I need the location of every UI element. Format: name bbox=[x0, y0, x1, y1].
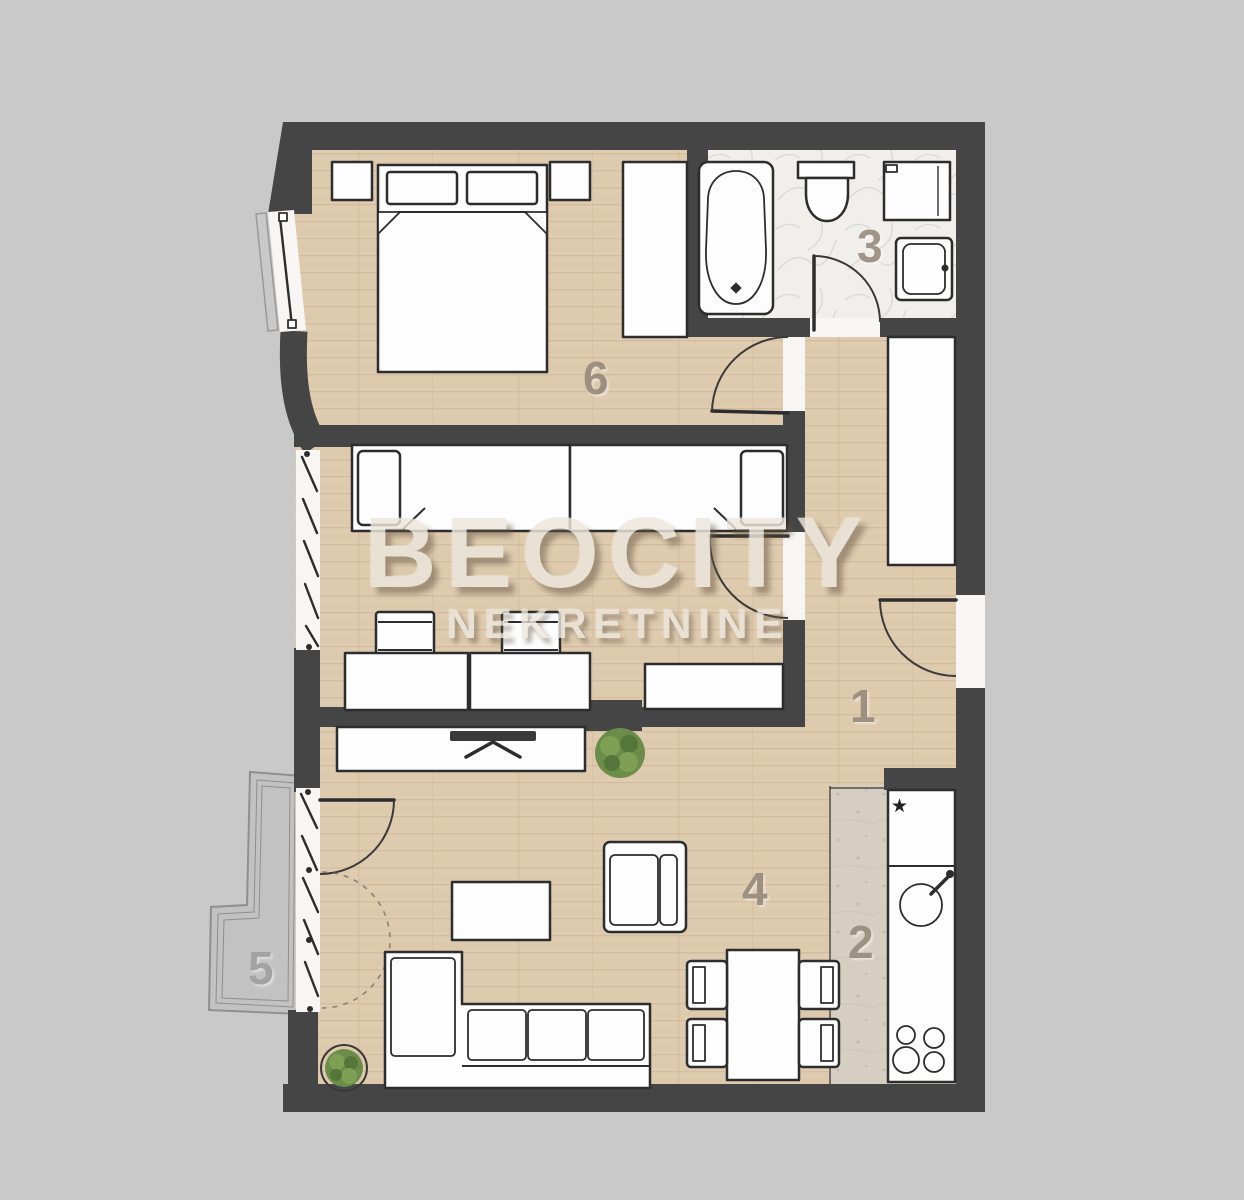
pillow bbox=[467, 172, 537, 204]
fridge-star-icon: ★ bbox=[891, 795, 908, 817]
floor-plan-drawing: ★ 1 2 3 4 5 6 bbox=[0, 0, 1244, 1200]
room-label-terrace: 5 bbox=[248, 942, 274, 994]
bedroom-door-leaf bbox=[712, 411, 788, 413]
room-label-bathroom: 3 bbox=[857, 220, 883, 272]
washing-machine-panel bbox=[886, 165, 897, 172]
desk-left bbox=[345, 653, 468, 710]
room-label-bedroom: 6 bbox=[583, 352, 609, 404]
room-label-hallway: 1 bbox=[850, 680, 876, 732]
dining-chair bbox=[687, 961, 727, 1009]
nightstand-left bbox=[332, 162, 372, 200]
dining-chair bbox=[687, 1019, 727, 1067]
potted-plant-icon bbox=[321, 1045, 367, 1091]
kitchen-fixtures: ★ bbox=[888, 790, 955, 1082]
armchair-backrest bbox=[660, 855, 677, 925]
dining-chair bbox=[799, 1019, 839, 1067]
low-cabinet bbox=[645, 664, 783, 709]
hall-closet bbox=[888, 337, 955, 565]
stove-burner bbox=[897, 1026, 915, 1044]
desk-right bbox=[470, 653, 590, 710]
sofa-chaise-cushion bbox=[391, 958, 455, 1056]
tv-icon bbox=[450, 731, 536, 741]
dining-chair bbox=[799, 961, 839, 1009]
pillow bbox=[387, 172, 457, 204]
sofa-cushion bbox=[588, 1010, 644, 1060]
armchair-cushion bbox=[610, 855, 658, 925]
dining-table bbox=[727, 950, 799, 1080]
room-label-living: 4 bbox=[742, 863, 768, 915]
plant-icon bbox=[595, 728, 645, 778]
coffee-table bbox=[452, 882, 550, 940]
stove-burner bbox=[924, 1028, 944, 1048]
floor-plan-canvas: ★ 1 2 3 4 5 6 BEOCITY NEKRETNINE bbox=[0, 0, 1244, 1200]
faucet-icon bbox=[942, 265, 949, 272]
toilet-tank bbox=[798, 162, 854, 178]
sofa-cushion bbox=[468, 1010, 526, 1060]
stove-burner bbox=[924, 1052, 944, 1072]
sofa-cushion bbox=[528, 1010, 586, 1060]
pillow bbox=[741, 451, 783, 525]
nightstand-right bbox=[550, 162, 590, 200]
toilet-bowl bbox=[806, 178, 848, 221]
room-label-kitchen: 2 bbox=[848, 916, 874, 968]
wardrobe bbox=[623, 162, 687, 337]
pillow bbox=[358, 451, 400, 525]
bathroom-sink-basin bbox=[903, 244, 945, 294]
kids-room-window bbox=[296, 450, 320, 650]
stove-burner bbox=[893, 1047, 919, 1073]
